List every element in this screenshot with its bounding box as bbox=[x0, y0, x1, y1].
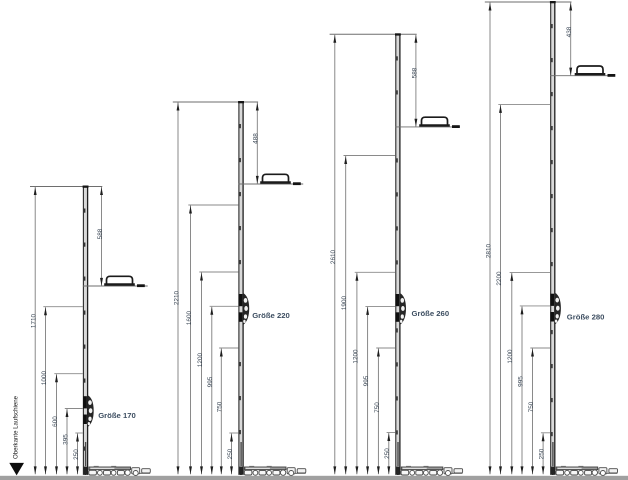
svg-text:Größe 280: Größe 280 bbox=[567, 313, 605, 322]
svg-text:1710: 1710 bbox=[31, 313, 38, 328]
svg-text:Oberkante Laufschiene: Oberkante Laufschiene bbox=[13, 395, 20, 459]
svg-text:750: 750 bbox=[528, 401, 535, 412]
svg-text:588: 588 bbox=[97, 228, 104, 239]
svg-text:Größe 220: Größe 220 bbox=[252, 311, 290, 320]
svg-text:438: 438 bbox=[566, 26, 573, 37]
svg-text:395: 395 bbox=[62, 434, 69, 445]
svg-text:750: 750 bbox=[217, 401, 224, 412]
svg-text:2610: 2610 bbox=[330, 249, 337, 264]
svg-text:488: 488 bbox=[253, 133, 260, 144]
svg-text:588: 588 bbox=[411, 67, 418, 78]
svg-text:1200: 1200 bbox=[197, 352, 204, 367]
svg-text:1900: 1900 bbox=[341, 295, 348, 310]
svg-text:750: 750 bbox=[374, 402, 381, 413]
svg-text:1000: 1000 bbox=[41, 370, 48, 385]
svg-text:250: 250 bbox=[384, 448, 391, 459]
svg-text:995: 995 bbox=[363, 375, 370, 386]
svg-text:1600: 1600 bbox=[186, 310, 193, 325]
svg-text:2210: 2210 bbox=[173, 290, 180, 305]
svg-text:2200: 2200 bbox=[496, 271, 503, 286]
svg-text:1200: 1200 bbox=[507, 349, 514, 364]
svg-text:995: 995 bbox=[517, 376, 524, 387]
svg-text:250: 250 bbox=[539, 448, 546, 459]
svg-text:250: 250 bbox=[73, 449, 80, 460]
svg-text:600: 600 bbox=[52, 416, 59, 427]
svg-text:995: 995 bbox=[207, 376, 214, 387]
svg-text:2810: 2810 bbox=[485, 243, 492, 258]
svg-text:250: 250 bbox=[227, 448, 234, 459]
svg-text:Größe 260: Größe 260 bbox=[412, 309, 450, 318]
svg-text:1200: 1200 bbox=[352, 349, 359, 364]
svg-text:Größe 170: Größe 170 bbox=[98, 411, 136, 420]
